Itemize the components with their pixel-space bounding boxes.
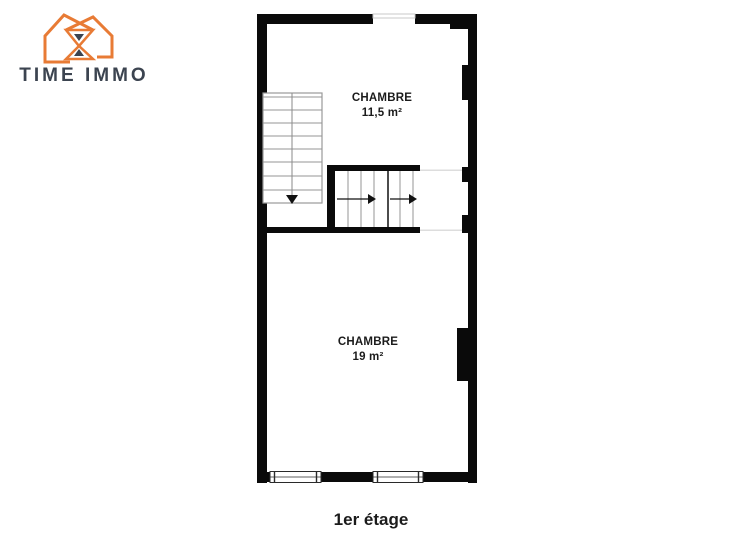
room-label-chambre-2: CHAMBRE 19 m² [338,335,398,365]
window-icon [270,472,321,483]
floor-plan [0,0,736,552]
room-name: CHAMBRE [338,335,398,350]
chimney-block [457,328,468,381]
stair-right-arrow-icon [368,194,376,204]
wall-nub [462,65,468,100]
wall-nub [462,215,468,233]
window-icon [373,472,423,483]
staircase-horizontal-icon [337,171,417,227]
staircase-vertical-icon [263,93,322,204]
walls [257,14,477,483]
floor-plan-page: TIME IMMO [0,0,736,552]
floor-label: 1er étage [334,510,409,530]
room-area: 19 m² [338,350,398,365]
room-name: CHAMBRE [352,91,412,106]
wall-openings [373,14,462,230]
room-area: 11,5 m² [352,106,412,121]
room-label-chambre-1: CHAMBRE 11,5 m² [352,91,412,121]
wall-nub [462,167,468,182]
